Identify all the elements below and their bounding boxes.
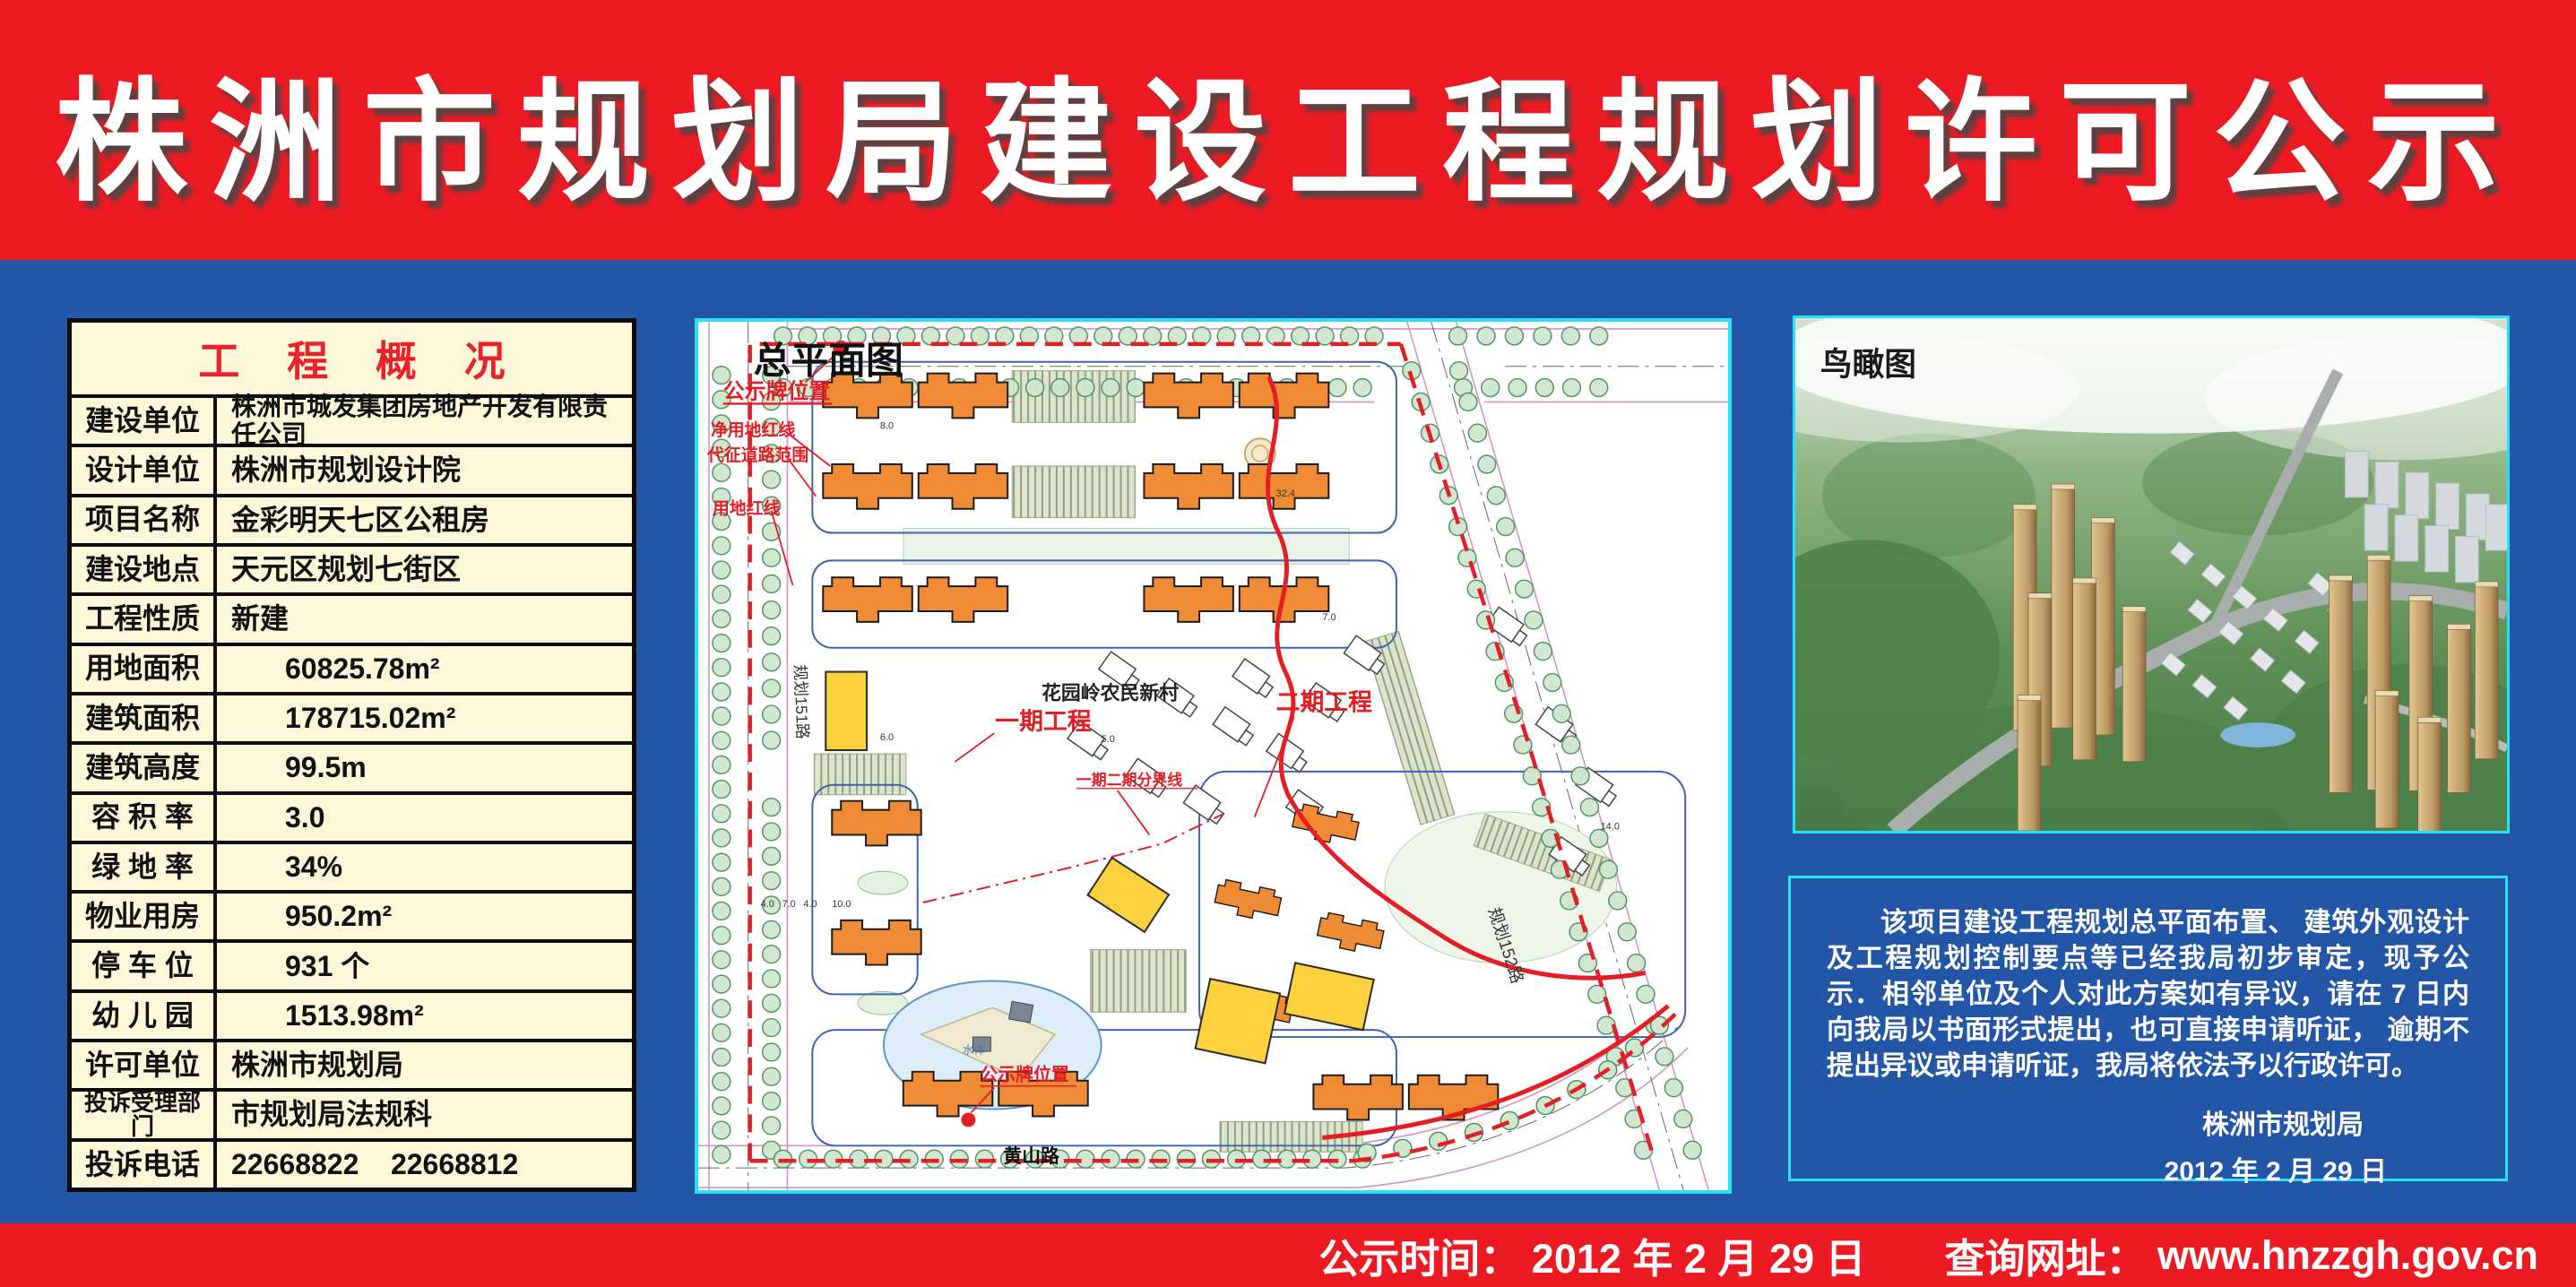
- svg-text:10.0: 10.0: [832, 899, 851, 910]
- row-value: 3.0: [217, 795, 632, 841]
- row-label: 设计单位: [72, 447, 217, 493]
- row-value: 950.2m²: [217, 894, 632, 939]
- row-value: 1513.98m²: [217, 993, 632, 1039]
- road-151-label: 规划151路: [791, 664, 811, 739]
- publish-time-label: 公示时间：: [1318, 1226, 1532, 1284]
- expropriated-road-label: 代征道路范围: [706, 445, 808, 465]
- row-label: 用地面积: [72, 646, 217, 692]
- site-plan-drawing: 总平面图 公示牌位置 净用地红线 代征道路范围 用地红线 一期工程 二期工程 一…: [698, 322, 1728, 1190]
- aerial-view-panel: 鸟瞰图: [1793, 315, 2510, 834]
- svg-text:7.0: 7.0: [782, 899, 796, 910]
- body-area: 工 程 概 况 建设单位株洲市城发集团房地产开发有限责任公司设计单位株洲市规划设…: [0, 260, 2576, 1223]
- row-value: 22668822 22668812: [217, 1142, 632, 1188]
- table-row: 用地面积60825.78m²: [72, 643, 632, 692]
- svg-text:5.0: 5.0: [1102, 734, 1115, 745]
- table-row: 建设单位株洲市城发集团房地产开发有限责任公司: [72, 394, 632, 444]
- row-label: 建筑高度: [72, 745, 217, 790]
- table-row: 设计单位株洲市规划设计院: [72, 444, 632, 493]
- table-row: 建筑高度99.5m: [72, 741, 632, 790]
- svg-text:32.4: 32.4: [1276, 488, 1295, 499]
- phase2-label: 二期工程: [1276, 688, 1373, 715]
- site-plan-title: 总平面图: [754, 340, 903, 382]
- footer-bar: 公示时间： 2012 年 2 月 29 日 查询网址： www.hnzzgh.g…: [0, 1223, 2576, 1287]
- water-label: 水体: [962, 1043, 985, 1057]
- table-row: 建设地点天元区规划七街区: [72, 543, 632, 592]
- table-row: 容 积 率3.0: [72, 791, 632, 841]
- row-value: 178715.02m²: [217, 695, 632, 741]
- row-value: 99.5m: [217, 745, 632, 790]
- row-label: 建设单位: [72, 398, 217, 444]
- notice-board-label-bottom: 公示牌位置: [980, 1065, 1069, 1085]
- net-land-red-line-label: 净用地红线: [711, 419, 796, 440]
- row-label: 项目名称: [72, 497, 217, 543]
- announcement-text: 该项目建设工程规划总平面布置、 建筑外观设计及工程规划控制要点等已经我局初步审定…: [1827, 905, 2469, 1084]
- table-row: 许可单位株洲市规划局: [72, 1039, 632, 1088]
- row-value: 931 个: [217, 943, 632, 989]
- publish-time-value: 2012 年 2 月 29 日: [1532, 1226, 1866, 1284]
- phase-divider-label: 一期二期分界线: [1076, 771, 1182, 789]
- table-row: 幼 儿 园1513.98m²: [72, 989, 632, 1039]
- row-label: 工程性质: [72, 596, 217, 642]
- row-value: 新建: [217, 596, 632, 642]
- row-label: 容 积 率: [72, 795, 217, 841]
- land-red-line-label: 用地红线: [713, 498, 781, 519]
- svg-text:6.0: 6.0: [880, 732, 894, 743]
- site-plan-panel: 总平面图 公示牌位置 净用地红线 代征道路范围 用地红线 一期工程 二期工程 一…: [695, 318, 1732, 1194]
- row-value: 金彩明天七区公租房: [217, 497, 632, 543]
- query-url-value: www.hnzzgh.gov.cn: [2157, 1232, 2538, 1279]
- signature: 株洲市规划局: [1827, 1102, 2469, 1142]
- svg-text:4.0: 4.0: [761, 899, 774, 910]
- table-row: 项目名称金彩明天七区公租房: [72, 494, 632, 543]
- table-row: 停 车 位931 个: [72, 939, 632, 989]
- project-overview-table: 工 程 概 况 建设单位株洲市城发集团房地产开发有限责任公司设计单位株洲市规划设…: [67, 318, 636, 1192]
- aerial-pond: [2220, 722, 2295, 747]
- table-title: 工 程 概 况: [72, 323, 632, 394]
- row-label: 建筑面积: [72, 695, 217, 741]
- row-value: 60825.78m²: [217, 646, 632, 692]
- row-label: 停 车 位: [72, 943, 217, 989]
- svg-text:8.0: 8.0: [880, 420, 894, 431]
- query-url-label: 查询网址：: [1945, 1226, 2158, 1284]
- row-label: 投诉电话: [72, 1142, 217, 1188]
- table-row: 投诉受理部门市规划局法规科: [72, 1088, 632, 1137]
- notice-board-dot-bottom: [961, 1113, 975, 1127]
- table-row: 工程性质新建: [72, 592, 632, 642]
- svg-text:7.0: 7.0: [1322, 612, 1336, 623]
- signature-date: 2012 年 2 月 29 日: [1827, 1149, 2469, 1188]
- row-label: 建设地点: [72, 547, 217, 592]
- page-title: 株洲市规划局建设工程规划许可公示: [55, 34, 2521, 227]
- table-row: 建筑面积178715.02m²: [72, 692, 632, 741]
- table-rows: 建设单位株洲市城发集团房地产开发有限责任公司设计单位株洲市规划设计院项目名称金彩…: [72, 394, 632, 1188]
- svg-text:14.0: 14.0: [1601, 821, 1620, 832]
- row-label: 绿 地 率: [72, 844, 217, 890]
- row-value: 市规划局法规科: [217, 1092, 632, 1137]
- row-label: 物业用房: [72, 894, 217, 939]
- row-label: 许可单位: [72, 1042, 217, 1088]
- table-row: 投诉电话22668822 22668812: [72, 1138, 632, 1188]
- row-value: 株洲市规划设计院: [217, 447, 632, 493]
- phase1-label: 一期工程: [995, 708, 1092, 735]
- table-row: 物业用房950.2m²: [72, 890, 632, 939]
- row-value: 34%: [217, 844, 632, 890]
- announcement-box: 该项目建设工程规划总平面布置、 建筑外观设计及工程规划控制要点等已经我局初步审定…: [1788, 876, 2508, 1181]
- table-row: 绿 地 率34%: [72, 841, 632, 890]
- notice-board-label-top: 公示牌位置: [723, 378, 830, 403]
- aerial-rendering: 鸟瞰图: [1795, 318, 2507, 831]
- huangshan-road-label: 黄山路: [1003, 1145, 1059, 1167]
- row-value: 株洲市规划局: [217, 1042, 632, 1088]
- notice-board: 株洲市规划局建设工程规划许可公示 工 程 概 况 建设单位株洲市城发集团房地产开…: [0, 0, 2576, 1287]
- row-value: 株洲市城发集团房地产开发有限责任公司: [217, 398, 632, 444]
- svg-text:4.0: 4.0: [803, 899, 817, 910]
- row-label: 投诉受理部门: [72, 1092, 217, 1137]
- row-label: 幼 儿 园: [72, 993, 217, 1039]
- aerial-view-title: 鸟瞰图: [1820, 346, 1916, 382]
- header-banner: 株洲市规划局建设工程规划许可公示: [0, 0, 2576, 260]
- row-value: 天元区规划七街区: [217, 547, 632, 592]
- village-label: 花园岭农民新村: [1042, 681, 1179, 704]
